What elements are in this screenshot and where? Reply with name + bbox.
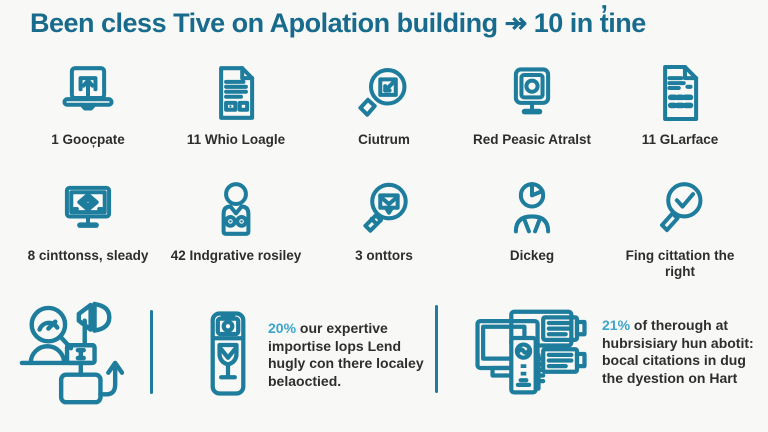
invoice-document-icon: [649, 60, 711, 126]
promotion-workflow-icon: [16, 299, 124, 424]
grid-item-label: 1 Gooc̦pate: [51, 132, 125, 148]
icon-grid: 1 Gooc̦pate 11 Whio Loagle: [14, 60, 754, 294]
magnifier-mail-icon: [353, 176, 415, 242]
grid-item-label: 8 cinttonss, sleady: [28, 248, 149, 264]
grid-item: Red Peasic Atralst: [458, 60, 606, 176]
grid-item-label: 3 onttors: [355, 248, 413, 264]
grid-item: Ciutrum: [310, 60, 458, 176]
stat-percent: 21%: [602, 317, 630, 333]
grid-item: 3 onttors: [310, 176, 458, 294]
computers-server-icon: [470, 306, 592, 405]
grid-item-label: 11 Whio Loagle: [187, 132, 285, 148]
document-lines-icon: [205, 60, 267, 126]
grid-item-label: Ciutrum: [358, 132, 410, 148]
vertical-divider: [150, 310, 153, 394]
grid-item-label: 42 Indgrative rosiley: [171, 248, 302, 264]
person-vest-icon: [205, 176, 267, 242]
page-title: Been cless Tive on Apolation building ↠ …: [30, 8, 646, 39]
grid-item-label: Fing cittation the right: [611, 248, 749, 279]
grid-item: 1 Gooc̦pate: [14, 60, 162, 176]
grid-item: 11 GLarface: [606, 60, 754, 176]
stat-text-left: 20% our expertive importise lops Lend hu…: [268, 320, 426, 390]
grid-item-label: Red Peasic Atralst: [473, 132, 591, 148]
grid-item: 42 Indgrative rosiley: [162, 176, 310, 294]
bottom-section: 20% our expertive importise lops Lend hu…: [0, 293, 768, 432]
person-pie-chart-icon: [501, 176, 563, 242]
grid-item-label: 11 GLarface: [642, 132, 719, 148]
magnifier-check-icon: [649, 176, 711, 242]
stat-percent: 20%: [268, 320, 296, 336]
grid-item: Fing cittation the right: [606, 176, 754, 294]
laptop-upload-icon: [57, 60, 119, 126]
vertical-divider: [435, 305, 438, 393]
grid-item: 11 Whio Loagle: [162, 60, 310, 176]
stat-text-right: 21% of therough at hubrsisiary hun aboti…: [602, 317, 766, 387]
grid-item: 8 cinttonss, sleady: [14, 176, 162, 294]
grid-item-label: Dickeg: [510, 248, 554, 264]
camera-wine-card-icon: [209, 311, 247, 401]
infographic-canvas: Been cless Tive on Apolation building ↠ …: [0, 0, 768, 432]
grid-item: Dickeg: [458, 176, 606, 294]
monitor-camera-icon: [501, 60, 563, 126]
magnifier-select-icon: [353, 60, 415, 126]
monitor-qr-icon: [57, 176, 119, 242]
